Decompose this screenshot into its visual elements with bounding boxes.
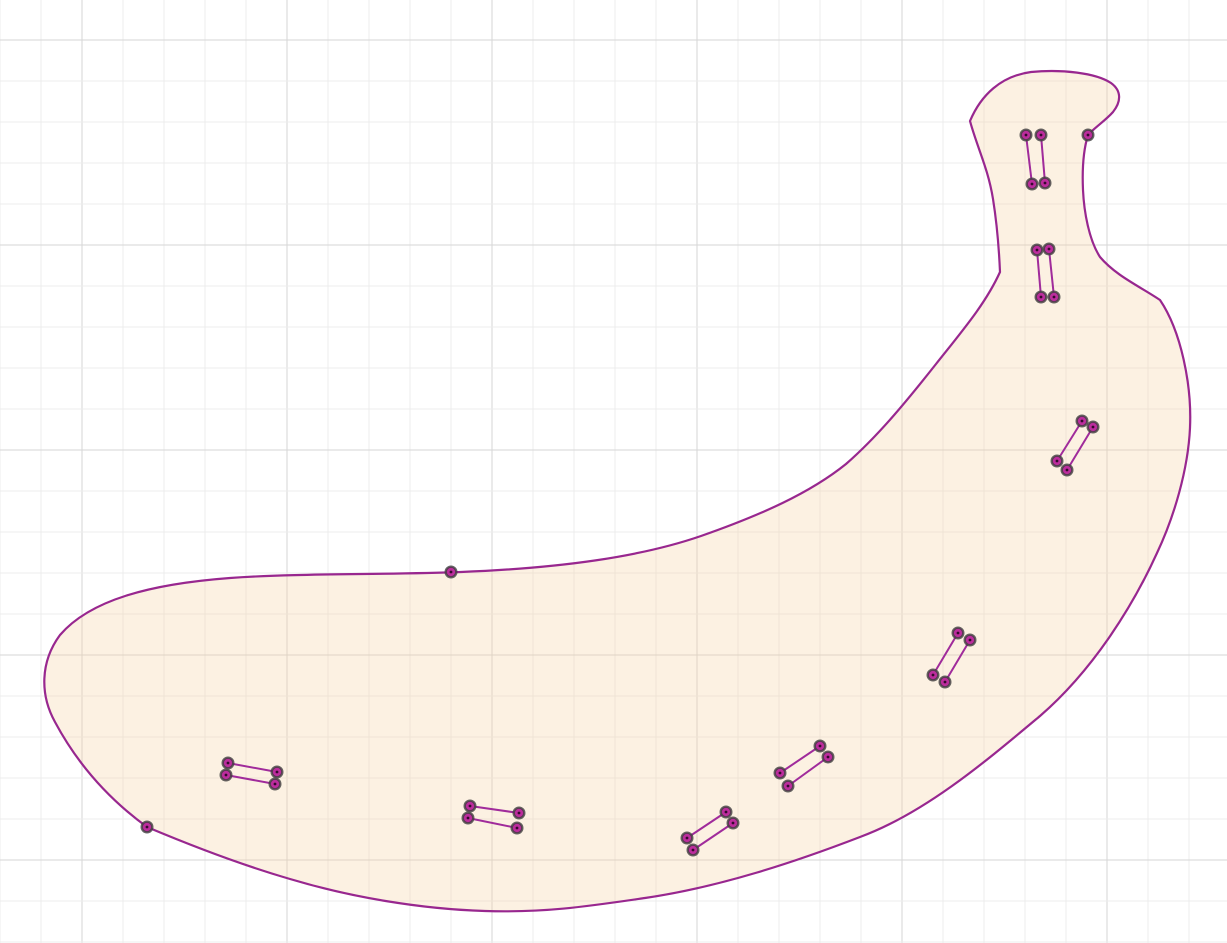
point-center-dot <box>1087 134 1090 137</box>
point-center-dot <box>146 826 149 829</box>
point-center-dot <box>1048 248 1051 251</box>
point-center-dot <box>732 822 735 825</box>
point-center-dot <box>1056 460 1059 463</box>
point-center-dot <box>686 837 689 840</box>
point-center-dot <box>779 772 782 775</box>
point-center-dot <box>1092 426 1095 429</box>
point-center-dot <box>1040 134 1043 137</box>
geometry-canvas[interactable] <box>0 0 1227 943</box>
point-center-dot <box>692 849 695 852</box>
point-center-dot <box>1066 469 1069 472</box>
point-center-dot <box>469 805 472 808</box>
point-center-dot <box>787 785 790 788</box>
point-center-dot <box>1031 183 1034 186</box>
point-center-dot <box>1081 420 1084 423</box>
point-center-dot <box>225 774 228 777</box>
point-center-dot <box>932 674 935 677</box>
point-center-dot <box>819 745 822 748</box>
point-center-dot <box>1044 182 1047 185</box>
point-center-dot <box>827 756 830 759</box>
point-center-dot <box>450 571 453 574</box>
point-center-dot <box>1036 249 1039 252</box>
point-center-dot <box>516 827 519 830</box>
point-center-dot <box>1025 134 1028 137</box>
point-center-dot <box>227 762 230 765</box>
point-center-dot <box>276 771 279 774</box>
point-center-dot <box>467 817 470 820</box>
point-center-dot <box>1040 296 1043 299</box>
point-center-dot <box>274 783 277 786</box>
point-center-dot <box>725 811 728 814</box>
point-center-dot <box>969 639 972 642</box>
graphics-view[interactable] <box>0 0 1227 943</box>
point-center-dot <box>1053 296 1056 299</box>
point-center-dot <box>518 812 521 815</box>
point-center-dot <box>944 681 947 684</box>
point-center-dot <box>957 632 960 635</box>
